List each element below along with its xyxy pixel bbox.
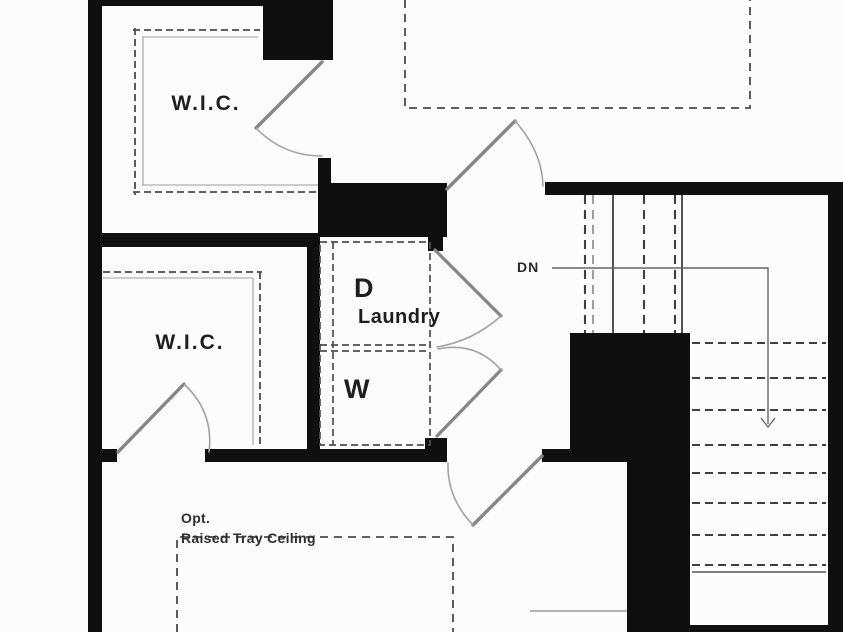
wall-right-exterior: [828, 182, 843, 632]
laundry-closet-outline: [320, 242, 430, 445]
wic-mid-shelving: [103, 272, 262, 447]
note-opt-raised-tray-ceiling: Opt. Raised Tray Ceiling: [181, 508, 316, 548]
wall-stair-block-upper: [570, 333, 690, 462]
door-panel: [118, 384, 184, 452]
door-bedroom-bottom: [448, 456, 542, 525]
door-wic-mid: [118, 384, 210, 452]
stairs-upper-flight-lines: [585, 195, 682, 333]
note-line-1: Opt.: [181, 508, 316, 528]
door-swing-arc: [437, 316, 501, 347]
wall-top: [102, 0, 263, 6]
door-swing-arc: [184, 384, 210, 452]
door-panel: [473, 456, 542, 525]
door-panel: [447, 121, 515, 189]
laundry-appliance-boxes: [320, 242, 430, 445]
wall-stair-block-lower: [627, 462, 690, 632]
wall-wic-top-right-jamb: [318, 158, 331, 237]
note-line-2: Raised Tray Ceiling: [181, 528, 316, 548]
door-wic-top: [256, 62, 322, 156]
door-bedroom-top: [447, 121, 543, 189]
door-swing-arc: [515, 121, 543, 186]
door-swing-arc: [256, 128, 322, 156]
wall-hall-top: [545, 182, 828, 195]
wall-wic-laundry-divider: [307, 247, 320, 462]
wall-mid-horizontal: [102, 233, 320, 247]
wall-top-block: [263, 0, 333, 60]
wall-bottom-left-piece: [92, 449, 117, 462]
room-label-wic-mid: W.I.C.: [134, 331, 246, 355]
wall-left-exterior: [88, 0, 102, 632]
stairs-down-label: DN: [517, 259, 539, 275]
tray-ceiling-outline-top-bedroom: [405, 0, 750, 108]
stairs-treads: [692, 343, 826, 565]
room-label-wic-top: W.I.C.: [150, 92, 262, 116]
floor-plan: W.I.C. W.I.C. D Laundry W DN Opt. Raised…: [0, 0, 843, 632]
wall-center-band: [330, 183, 447, 237]
washer-dryer-divider: [320, 345, 430, 351]
door-swing-arc: [448, 463, 473, 525]
wall-bottom-band: [690, 625, 843, 632]
tray-ceiling-outline-bottom-bedroom: [177, 537, 453, 632]
door-panel: [256, 62, 322, 128]
door-swing-arc: [438, 347, 501, 370]
door-panel: [435, 250, 501, 316]
door-laundry-upper-leaf: [435, 250, 501, 347]
appliance-label-washer: W: [344, 374, 370, 405]
door-laundry-lower-leaf: [437, 347, 501, 436]
appliance-label-dryer: D: [354, 273, 375, 304]
wall-bottom-pier: [425, 438, 447, 462]
door-panel: [437, 370, 501, 436]
wall-bottom-main: [205, 449, 447, 462]
room-label-laundry: Laundry: [358, 306, 440, 329]
